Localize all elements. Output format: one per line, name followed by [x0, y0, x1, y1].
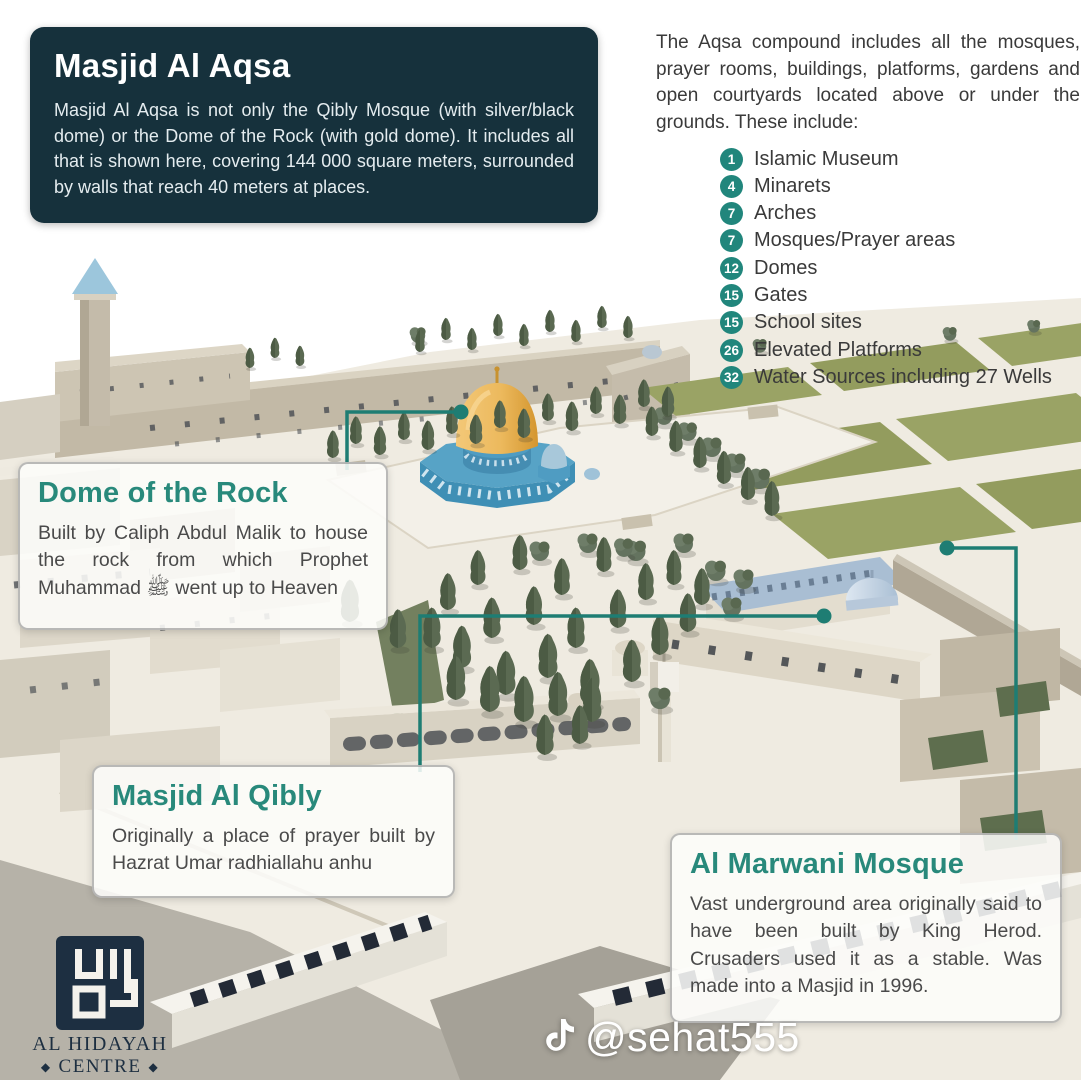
diamond-icon: ◆: [148, 1060, 159, 1075]
list-item-label: Domes: [754, 257, 817, 280]
callout-masjid-al-qibly: Masjid Al Qibly Originally a place of pr…: [92, 765, 455, 898]
count-badge: 12: [720, 257, 743, 280]
list-item: 32Water Sources including 27 Wells: [720, 364, 1080, 391]
al-hidayah-logo: AL HIDAYAH ◆ CENTRE ◆ EASTERN CAPE: [28, 936, 172, 1080]
count-badge: 1: [720, 148, 743, 171]
callout-title: Al Marwani Mosque: [690, 848, 1042, 881]
list-item: 4Minarets: [720, 173, 1080, 200]
list-item: 15Gates: [720, 282, 1080, 309]
list-item: 7Mosques/Prayer areas: [720, 227, 1080, 254]
list-item-label: Mosques/Prayer areas: [754, 229, 955, 252]
tiktok-note-icon: [543, 1019, 575, 1057]
intro-panel: Masjid Al Aqsa Masjid Al Aqsa is not onl…: [30, 27, 598, 223]
count-badge: 15: [720, 284, 743, 307]
list-item: 7Arches: [720, 200, 1080, 227]
list-item-label: Minarets: [754, 175, 831, 198]
list-item-label: Water Sources including 27 Wells: [754, 366, 1052, 389]
callout-al-marwani-mosque: Al Marwani Mosque Vast underground area …: [670, 833, 1062, 1023]
count-badge: 7: [720, 229, 743, 252]
compound-feature-list: 1Islamic Museum 4Minarets 7Arches 7Mosqu…: [656, 145, 1080, 391]
dot-masjid-al-qibly: [817, 609, 832, 624]
compound-intro: The Aqsa compound includes all the mosqu…: [656, 30, 1080, 136]
count-badge: 26: [720, 339, 743, 362]
compound-info: The Aqsa compound includes all the mosqu…: [656, 30, 1080, 391]
list-item: 12Domes: [720, 255, 1080, 282]
callout-body: Built by Caliph Abdul Malik to house the…: [38, 520, 368, 602]
kufic-calligraphy-icon: [56, 936, 144, 1030]
social-handle: @sehat555: [543, 1014, 800, 1061]
dot-dome-of-the-rock: [454, 405, 469, 420]
page-title: Masjid Al Aqsa: [54, 47, 574, 85]
list-item-label: School sites: [754, 311, 862, 334]
dot-al-marwani: [940, 541, 955, 556]
callout-body: Vast underground area originally said to…: [690, 891, 1042, 1000]
list-item-label: Gates: [754, 284, 807, 307]
count-badge: 32: [720, 366, 743, 389]
list-item-label: Islamic Museum: [754, 148, 898, 171]
diamond-icon: ◆: [41, 1060, 52, 1075]
list-item: 1Islamic Museum: [720, 145, 1080, 172]
count-badge: 15: [720, 311, 743, 334]
callout-title: Masjid Al Qibly: [112, 780, 435, 813]
count-badge: 4: [720, 175, 743, 198]
list-item: 26Elevated Platforms: [720, 336, 1080, 363]
logo-centre-word: CENTRE: [59, 1056, 142, 1078]
count-badge: 7: [720, 202, 743, 225]
list-item-label: Arches: [754, 202, 816, 225]
callout-dome-of-the-rock: Dome of the Rock Built by Caliph Abdul M…: [18, 462, 388, 630]
intro-body: Masjid Al Aqsa is not only the Qibly Mos…: [54, 98, 574, 200]
list-item-label: Elevated Platforms: [754, 339, 922, 362]
tiktok-username: @sehat555: [585, 1014, 800, 1061]
infographic-root: Masjid Al Aqsa Masjid Al Aqsa is not onl…: [0, 0, 1081, 1080]
callout-body: Originally a place of prayer built by Ha…: [112, 823, 435, 878]
logo-name: AL HIDAYAH: [28, 1033, 172, 1056]
logo-centre-line: ◆ CENTRE ◆: [28, 1056, 172, 1078]
list-item: 15School sites: [720, 309, 1080, 336]
callout-title: Dome of the Rock: [38, 477, 368, 510]
